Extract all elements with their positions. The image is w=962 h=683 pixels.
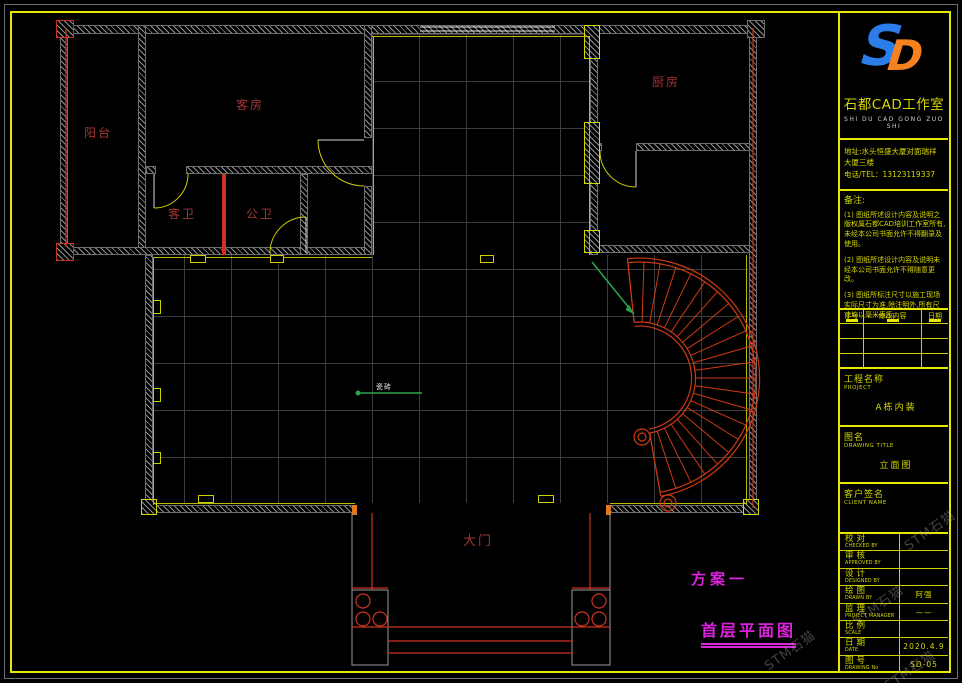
project-label: 工程名称: [844, 372, 948, 385]
wall-guestroom-bottom-b: [186, 166, 372, 174]
entrance-jamb-right: [606, 505, 611, 515]
column-notch: [270, 255, 284, 263]
drawing-title-value: 立面图: [844, 458, 948, 471]
info-value-designed: [900, 569, 948, 586]
titleblock: S D 石都CAD工作室 SHI DU CAD GONG ZUO SHI 地址:…: [840, 13, 948, 671]
project-label-en: PROJECT: [844, 385, 948, 391]
wall-hall-topright: [590, 245, 757, 253]
floor-tile-grid-top: [372, 34, 590, 255]
wall-bottom-right: [610, 505, 757, 513]
wall-publicbath-right: [300, 174, 308, 255]
info-value-approved: [900, 551, 948, 568]
hall-inner-edge-top-mid: [372, 36, 590, 37]
revision-cell: [864, 339, 922, 354]
wall-kitchen-inner-b: [636, 143, 757, 151]
address-line2: 大厦三楼: [844, 157, 946, 168]
note-2: (2) 图纸所述设计内容及说明未经本公司书面允许不得随意更改。: [844, 256, 946, 285]
column-balcony-bottom: [56, 243, 74, 261]
column-notch: [153, 388, 161, 402]
entrance-jamb-left: [352, 505, 357, 515]
revision-cell: [840, 354, 864, 368]
wall-hall-left: [145, 255, 153, 513]
column-hall-bl: [141, 499, 157, 515]
hall-inner-edge-right: [746, 255, 747, 505]
revision-cell: [922, 354, 948, 368]
column-top-left: [56, 20, 74, 38]
revision-cell: [922, 339, 948, 354]
room-label-main-gate: 大门: [463, 530, 493, 549]
info-label-scale: 比例 SCALE: [840, 621, 900, 638]
revision-header-desc: 修改内容: [864, 310, 922, 324]
column-notch: [190, 255, 206, 263]
wall-balcony-divider: [138, 25, 146, 255]
info-value-drawn: 阿强: [900, 586, 948, 603]
column-notch: [198, 495, 214, 503]
column-notch: [480, 255, 494, 263]
column-kitchen-2: [584, 122, 600, 184]
column-kitchen-3: [584, 230, 600, 253]
floor-tile-grid-main: [153, 255, 748, 503]
revision-cell: [864, 354, 922, 368]
room-label-public-bath: 公卫: [246, 205, 274, 222]
titleblock-logo-section: S D 石都CAD工作室 SHI DU CAD GONG ZUO SHI: [840, 13, 948, 140]
room-label-guest-bath: 客卫: [168, 205, 196, 222]
client-label: 客户签名: [844, 487, 948, 500]
wall-balcony-left: [60, 25, 68, 255]
room-label-kitchen: 厨房: [652, 73, 680, 90]
titleblock-address-section: 地址:水头恒盛大厦对面瑞祥 大厦三楼 电话/TEL：13123119337: [840, 140, 948, 191]
column-notch: [153, 300, 161, 314]
wall-bottom-left: [145, 505, 355, 513]
info-label-date: 日期 DATE: [840, 638, 900, 655]
wall-guestroom-bottom-a: [146, 166, 156, 174]
info-value-scale: [900, 621, 948, 638]
wall-right: [749, 25, 757, 513]
revision-table: 序号 修改内容 日期: [840, 310, 948, 369]
hall-inner-edge-bottom-a: [153, 503, 355, 504]
wall-top: [60, 25, 757, 34]
revision-cell: [922, 324, 948, 339]
phone: 电话/TEL：13123119337: [844, 169, 946, 180]
room-label-guest-room: 客房: [236, 96, 264, 113]
revision-header-date: 日期: [922, 310, 948, 324]
wall-corridor-right-lower: [364, 186, 372, 255]
column-top-right: [747, 20, 765, 38]
drawing-title-section: 图名 DRAWING TITLE 立面图: [840, 427, 948, 484]
address-line1: 地址:水头恒盛大厦对面瑞祥: [844, 146, 946, 157]
column-notch: [538, 495, 554, 503]
project-section: 工程名称 PROJECT A栋内装: [840, 369, 948, 427]
scheme-label: 方案一: [691, 568, 748, 589]
drawing-title-label-en: DRAWING TITLE: [844, 443, 948, 449]
column-kitchen-1: [584, 25, 600, 59]
note-1: (1) 图纸所述设计内容及说明之版权属石都CAD培训工作室所有,未经本公司书面允…: [844, 211, 946, 250]
wall-guestroom-right: [364, 25, 372, 138]
info-label-approved: 审核 APPROVED BY: [840, 551, 900, 568]
hall-inner-edge-bottom-b: [610, 503, 746, 504]
info-value-manager: ——: [900, 604, 948, 621]
info-label-checked: 校对 CHECKED BY: [840, 534, 900, 551]
hall-inner-edge-top-left: [153, 257, 372, 258]
wall-bath-divider: [222, 174, 226, 255]
studio-logo: S D: [840, 13, 948, 93]
revision-cell: [840, 324, 864, 339]
revision-header-no: 序号: [840, 310, 864, 324]
notes-title: 备注:: [844, 195, 946, 208]
hall-inner-edge-left: [153, 258, 154, 505]
logo-letter-d: D: [886, 35, 925, 77]
hall-inner-edge-mid-right: [589, 36, 590, 255]
studio-pinyin: SHI DU CAD GONG ZUO SHI: [840, 116, 948, 135]
column-notch: [153, 452, 161, 464]
cad-drawing-sheet: 瓷砖 阳台 客房 客卫 公卫 厨房 大门 方案一 首层平面图 S: [0, 0, 962, 683]
drawing-title-label: 图名: [844, 430, 948, 443]
revision-cell: [840, 339, 864, 354]
client-label-en: CLIENT NAME: [844, 500, 948, 506]
room-label-balcony: 阳台: [84, 124, 112, 141]
revision-cell: [864, 324, 922, 339]
hall-inner-edge-mid-left: [373, 36, 374, 255]
project-value: A栋内装: [844, 400, 948, 413]
studio-name: 石都CAD工作室: [840, 93, 948, 113]
wall-bath-bottom: [60, 247, 372, 255]
titleblock-notes-section: 备注: (1) 图纸所述设计内容及说明之版权属石都CAD培训工作室所有,未经本公…: [840, 191, 948, 310]
